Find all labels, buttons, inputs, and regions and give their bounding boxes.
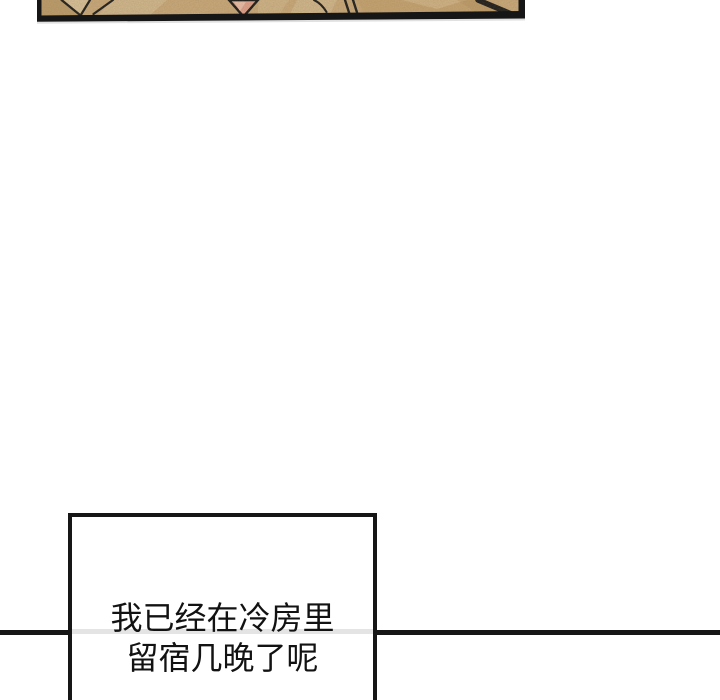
speech-line: 我已经在冷房里 (72, 598, 373, 638)
speech-box: 我已经在冷房里 留宿几晚了呢 (68, 513, 377, 700)
speech-text: 我已经在冷房里 留宿几晚了呢 (72, 598, 373, 678)
comic-panel-artwork (37, 0, 525, 24)
speech-line: 留宿几晚了呢 (72, 638, 373, 678)
comic-reader-page: 我已经在冷房里 留宿几晚了呢 (0, 0, 720, 700)
